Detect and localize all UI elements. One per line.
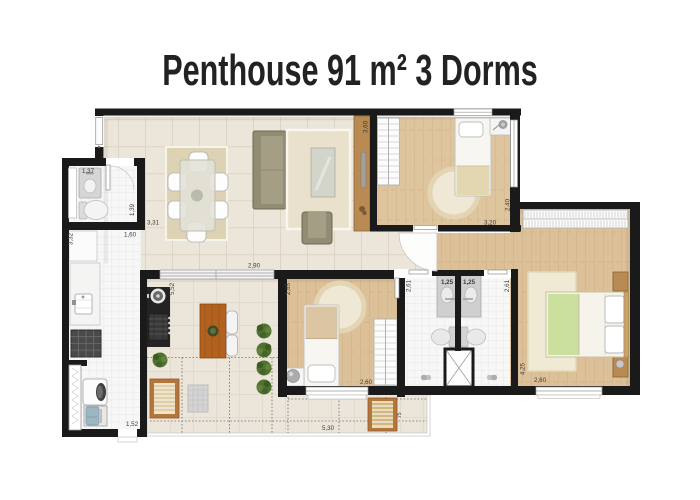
svg-text:2,60: 2,60 [360, 379, 373, 386]
svg-text:5,52: 5,52 [169, 282, 176, 295]
svg-text:1,39: 1,39 [129, 203, 136, 216]
svg-text:2,60: 2,60 [534, 377, 547, 384]
svg-text:2,90: 2,90 [248, 263, 261, 270]
svg-text:75: 75 [397, 412, 403, 418]
svg-text:2,61: 2,61 [406, 279, 413, 292]
svg-text:4,25: 4,25 [520, 362, 527, 375]
svg-text:1,60: 1,60 [124, 232, 137, 239]
svg-text:3,31: 3,31 [147, 220, 160, 227]
svg-text:3,60: 3,60 [363, 120, 370, 133]
svg-text:3,32: 3,32 [68, 232, 75, 245]
svg-text:1,52: 1,52 [126, 421, 139, 428]
svg-text:1,37: 1,37 [82, 168, 95, 175]
svg-text:3,20: 3,20 [484, 220, 497, 227]
svg-text:1,25: 1,25 [441, 279, 454, 286]
svg-text:5,30: 5,30 [322, 425, 335, 432]
svg-text:2,61: 2,61 [504, 279, 511, 292]
svg-text:1,25: 1,25 [463, 279, 476, 286]
svg-text:2,40: 2,40 [505, 198, 512, 211]
svg-text:2,65: 2,65 [285, 282, 292, 295]
